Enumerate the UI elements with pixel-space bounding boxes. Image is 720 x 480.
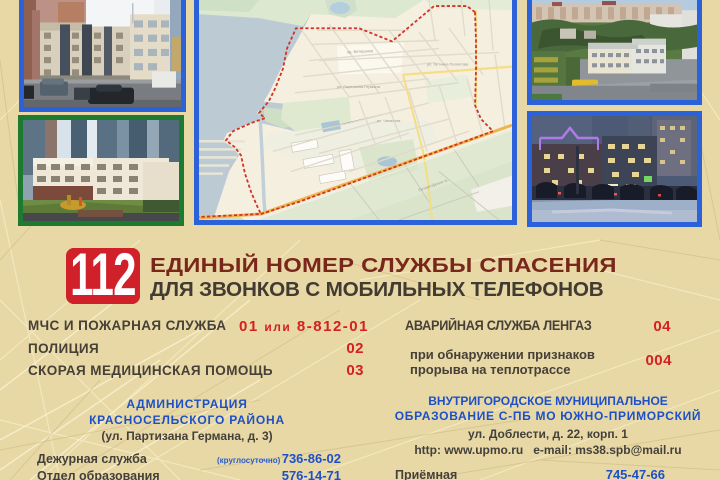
svg-text:ул. Лётчика Пилютова: ул. Лётчика Пилютова: [427, 62, 469, 67]
svg-text:ул. Партизана Германа: ул. Партизана Германа: [337, 84, 381, 89]
svg-text:ул. Чекистов: ул. Чекистов: [377, 118, 400, 123]
